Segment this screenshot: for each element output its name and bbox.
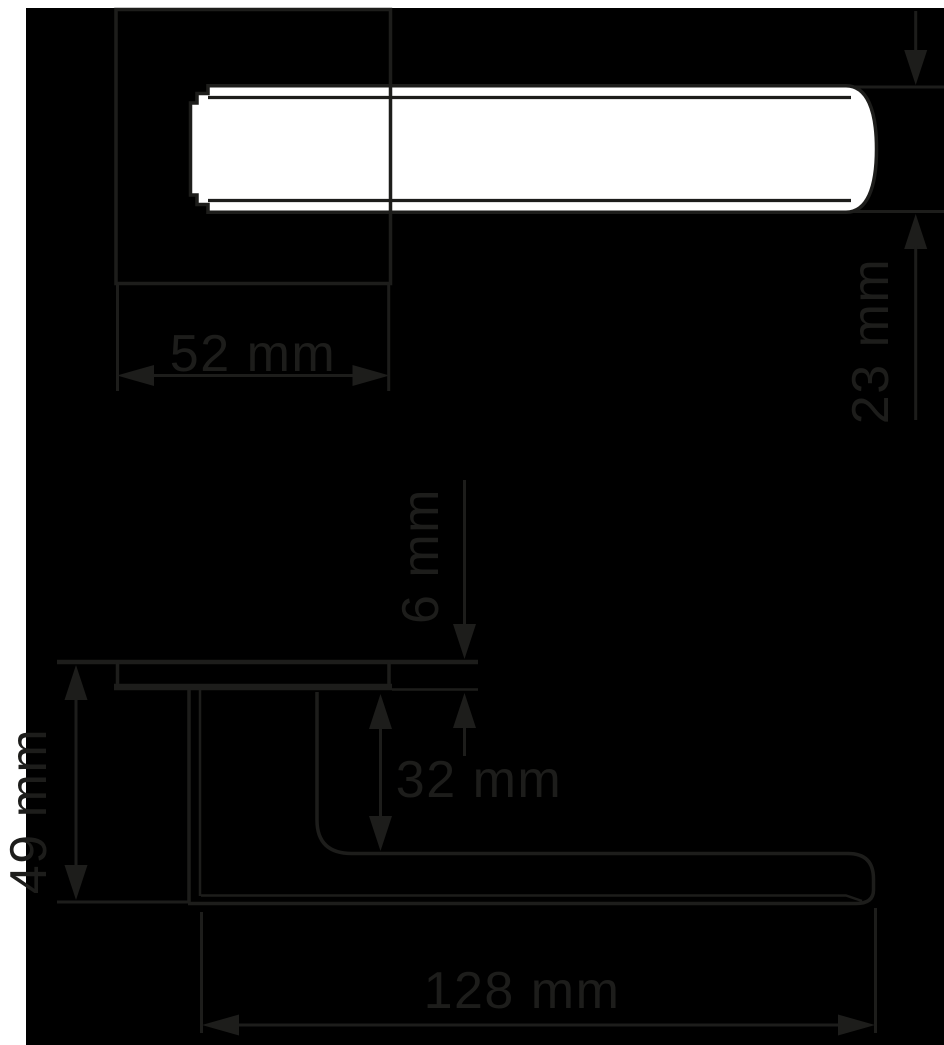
dimension-label-6mm: 6 mm xyxy=(392,488,450,624)
dimension-label-49mm: 49 mm xyxy=(0,728,58,894)
dimension-label-128mm: 128 mm xyxy=(424,962,621,1020)
grip-bar-plan xyxy=(191,86,877,212)
dimension-label-52mm: 52 mm xyxy=(170,325,336,383)
dimension-label-32mm: 32 mm xyxy=(396,751,562,809)
technical-drawing: 52 mm 23 mm xyxy=(0,0,944,1045)
dimension-label-23mm: 23 mm xyxy=(842,258,900,424)
drawing-canvas: 52 mm 23 mm xyxy=(0,0,944,1045)
page-margin-top xyxy=(0,0,944,8)
